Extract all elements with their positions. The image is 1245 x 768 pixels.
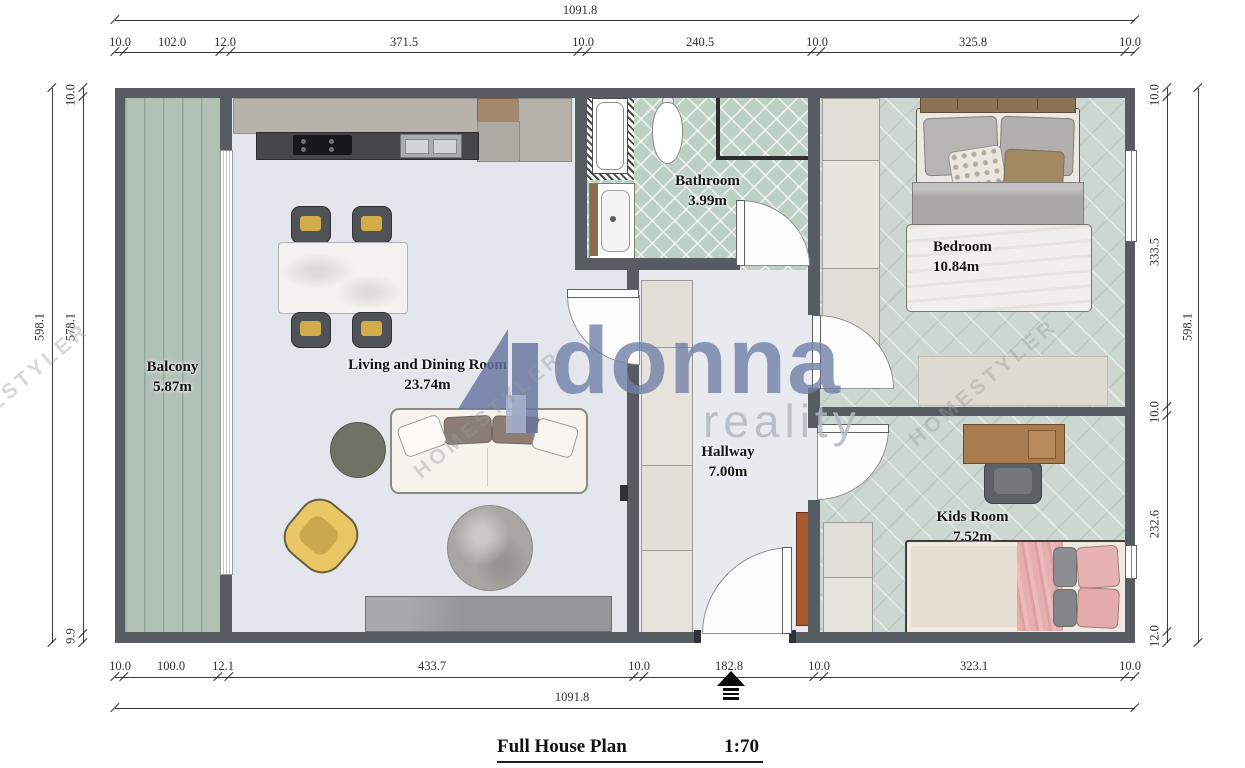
dim-top-7: 325.8 bbox=[959, 35, 987, 50]
room-area: 5.87m bbox=[153, 379, 192, 395]
dim-bot-8: 10.0 bbox=[1119, 659, 1141, 674]
room-name: Bathroom bbox=[675, 173, 740, 189]
round-rug bbox=[447, 505, 533, 591]
dim-bot-3: 433.7 bbox=[418, 659, 446, 674]
bathroom-sink-icon bbox=[589, 183, 635, 259]
hallway-cabinet bbox=[641, 550, 693, 634]
dining-chair bbox=[352, 206, 392, 244]
north-arrow-icon bbox=[723, 697, 739, 700]
living-hallway-door-leaf bbox=[567, 289, 639, 298]
kitchen-wood-cabinet bbox=[477, 98, 520, 123]
dim-top-2: 12.0 bbox=[214, 35, 236, 50]
dim-right-2: 10.0 bbox=[1148, 401, 1163, 423]
room-label-hallway: Hallway 7.00m bbox=[688, 443, 768, 482]
shower-screen bbox=[716, 90, 720, 160]
dim-bottom-total: 1091.8 bbox=[555, 690, 589, 705]
dim-tick bbox=[1193, 638, 1202, 647]
dim-tick bbox=[110, 15, 119, 24]
room-area: 23.74m bbox=[404, 377, 450, 393]
door-jamb bbox=[694, 630, 701, 643]
dim-right-0: 10.0 bbox=[1148, 84, 1163, 106]
hallway-cabinet bbox=[641, 465, 693, 552]
dim-tick bbox=[1130, 15, 1139, 24]
dim-line-top-segments bbox=[115, 52, 1135, 53]
wall-return bbox=[620, 485, 628, 501]
north-arrow-icon bbox=[717, 671, 745, 686]
tv-stand bbox=[365, 596, 612, 632]
shower-screen bbox=[716, 156, 808, 160]
room-area: 10.84m bbox=[933, 259, 979, 275]
room-area: 7.00m bbox=[709, 464, 748, 480]
room-label-bathroom: Bathroom 3.99m bbox=[650, 172, 765, 211]
dim-top-total: 1091.8 bbox=[563, 3, 597, 18]
room-label-kids: Kids Room 7.52m bbox=[905, 508, 1040, 547]
dim-bot-4: 10.0 bbox=[628, 659, 650, 674]
bathtub-icon bbox=[586, 92, 634, 180]
toilet-icon bbox=[649, 94, 685, 166]
dining-table bbox=[278, 242, 408, 314]
room-area: 7.52m bbox=[953, 529, 992, 545]
dim-bot-2: 12.1 bbox=[212, 659, 234, 674]
window bbox=[1125, 545, 1137, 579]
wall-segment bbox=[220, 573, 232, 632]
dim-bot-7: 323.1 bbox=[960, 659, 988, 674]
dim-top-6: 10.0 bbox=[806, 35, 828, 50]
brand-sub-watermark: reality bbox=[703, 398, 861, 444]
dim-tick bbox=[1162, 411, 1171, 420]
wall-segment bbox=[790, 632, 1135, 643]
dim-bot-0: 10.0 bbox=[109, 659, 131, 674]
dim-bot-1: 100.0 bbox=[157, 659, 185, 674]
dim-tick bbox=[47, 638, 56, 647]
kids-desk bbox=[963, 424, 1065, 464]
north-arrow-icon bbox=[723, 693, 739, 696]
dim-right-4: 12.0 bbox=[1148, 625, 1163, 647]
dim-top-3: 371.5 bbox=[390, 35, 418, 50]
kitchen-upper-cabinet bbox=[233, 98, 479, 134]
dim-right-3: 232.6 bbox=[1148, 510, 1163, 538]
wall-segment bbox=[808, 98, 820, 270]
room-label-bedroom: Bedroom 10.84m bbox=[933, 238, 992, 277]
dim-tick bbox=[110, 703, 119, 712]
entrance-door-leaf bbox=[782, 547, 792, 634]
bedroom-wardrobe bbox=[822, 160, 880, 270]
room-area: 3.99m bbox=[688, 193, 727, 209]
title-block: Full House Plan 1:70 bbox=[497, 736, 763, 763]
dim-tick bbox=[1130, 703, 1139, 712]
dim-left-0: 10.0 bbox=[64, 84, 79, 106]
dim-line-left-segments bbox=[83, 88, 84, 643]
room-name: Balcony bbox=[147, 359, 199, 375]
bedroom-wardrobe bbox=[822, 98, 880, 162]
dim-line-bottom-total bbox=[115, 708, 1135, 709]
kitchen-tall-cabinet bbox=[518, 98, 572, 162]
dim-tick bbox=[1162, 92, 1171, 101]
dim-right-total: 598.1 bbox=[1181, 313, 1196, 341]
dim-top-1: 102.0 bbox=[158, 35, 186, 50]
dining-chair bbox=[291, 206, 331, 244]
dim-line-top-total bbox=[115, 20, 1135, 21]
dim-right-1: 333.5 bbox=[1148, 238, 1163, 266]
wall-segment bbox=[115, 88, 125, 643]
wall-segment bbox=[820, 407, 1125, 416]
bed-blanket bbox=[912, 182, 1084, 228]
dining-chair bbox=[291, 312, 331, 348]
window bbox=[1125, 150, 1137, 242]
kitchen-sink-icon bbox=[400, 134, 462, 158]
dim-tick bbox=[47, 83, 56, 92]
dim-left-2: 9.9 bbox=[64, 628, 79, 644]
kids-dresser bbox=[823, 522, 873, 579]
wall-segment bbox=[575, 98, 587, 270]
room-label-balcony: Balcony 5.87m bbox=[125, 358, 220, 397]
kids-dresser bbox=[823, 577, 873, 634]
dim-left-total: 598.1 bbox=[33, 313, 48, 341]
dim-tick bbox=[1193, 83, 1202, 92]
dim-line-right-total bbox=[1198, 88, 1199, 643]
north-arrow-icon bbox=[723, 688, 739, 691]
kitchen-corner-cabinet bbox=[477, 121, 520, 162]
pouf bbox=[330, 422, 386, 478]
wall-segment bbox=[115, 88, 1135, 98]
dim-tick bbox=[1162, 627, 1171, 636]
dim-tick bbox=[78, 92, 87, 101]
plan-title: Full House Plan bbox=[497, 736, 627, 758]
room-name: Kids Room bbox=[936, 509, 1008, 525]
balcony-sliding-door bbox=[220, 150, 233, 575]
floor-plan-canvas: 1091.8 10.0 102.0 12.0 371.5 10.0 240.5 … bbox=[0, 0, 1245, 768]
wall-segment bbox=[115, 632, 700, 643]
dim-tick bbox=[1162, 638, 1171, 647]
dim-top-5: 240.5 bbox=[686, 35, 714, 50]
room-name: Bedroom bbox=[933, 239, 992, 255]
kids-desk-chair bbox=[984, 460, 1042, 504]
dim-top-4: 10.0 bbox=[572, 35, 594, 50]
dim-line-bottom-segments bbox=[115, 677, 1135, 678]
wall-segment bbox=[575, 258, 740, 270]
dim-top-0: 10.0 bbox=[109, 35, 131, 50]
kids-bed bbox=[905, 540, 1127, 637]
dim-top-8: 10.0 bbox=[1119, 35, 1141, 50]
dim-line-right-segments bbox=[1167, 88, 1168, 643]
dim-tick bbox=[78, 638, 87, 647]
wall-segment bbox=[220, 98, 232, 150]
dim-bot-6: 10.0 bbox=[808, 659, 830, 674]
wall-segment bbox=[808, 500, 820, 632]
plan-scale: 1:70 bbox=[724, 736, 759, 758]
stove-icon bbox=[293, 135, 352, 155]
dining-chair bbox=[352, 312, 392, 348]
